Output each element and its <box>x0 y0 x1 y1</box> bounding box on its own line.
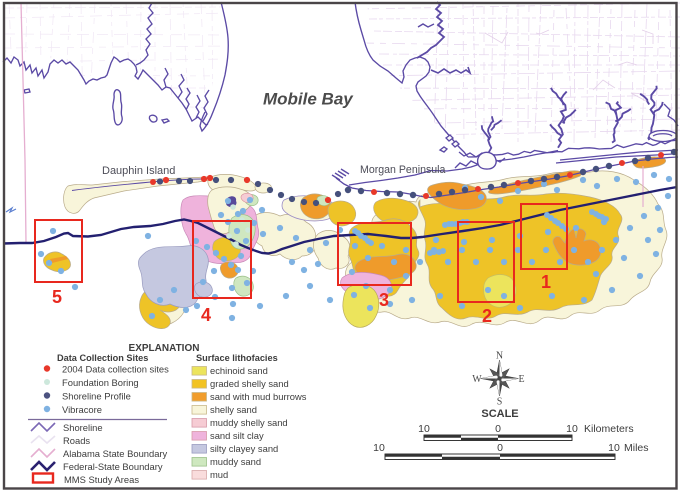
svg-text:2004 Data collection sites: 2004 Data collection sites <box>62 364 169 375</box>
svg-text:Vibracore: Vibracore <box>62 404 102 415</box>
svg-text:Federal-State Boundary: Federal-State Boundary <box>63 461 163 472</box>
svg-text:Alabama State Boundary: Alabama State Boundary <box>63 448 168 459</box>
svg-text:Dauphin Island: Dauphin Island <box>102 165 175 177</box>
svg-text:sand with mud burrows: sand with mud burrows <box>210 391 307 402</box>
svg-text:muddy sand: muddy sand <box>210 456 261 467</box>
svg-text:Data Collection Sites: Data Collection Sites <box>57 353 148 363</box>
svg-text:2: 2 <box>482 306 492 326</box>
svg-text:10: 10 <box>418 423 430 435</box>
svg-text:Foundation Boring: Foundation Boring <box>62 377 139 388</box>
svg-text:10: 10 <box>373 442 385 454</box>
svg-text:Roads: Roads <box>63 435 90 446</box>
svg-text:sand silt clay: sand silt clay <box>210 430 264 441</box>
svg-text:1: 1 <box>541 272 551 292</box>
svg-text:Shoreline Profile: Shoreline Profile <box>62 391 131 402</box>
svg-text:E: E <box>518 374 524 385</box>
svg-text:silty clayey sand: silty clayey sand <box>210 443 278 454</box>
svg-text:10: 10 <box>608 442 620 454</box>
svg-text:SCALE: SCALE <box>481 408 518 420</box>
svg-text:Miles: Miles <box>624 442 649 454</box>
svg-text:mud: mud <box>210 469 228 480</box>
svg-text:0: 0 <box>497 442 503 454</box>
svg-text:graded shelly sand: graded shelly sand <box>210 378 289 389</box>
svg-text:S: S <box>497 397 503 408</box>
svg-text:shelly sand: shelly sand <box>210 404 257 415</box>
svg-text:echinoid sand: echinoid sand <box>210 365 268 376</box>
svg-text:Morgan Peninsula: Morgan Peninsula <box>360 164 445 176</box>
svg-text:Shoreline: Shoreline <box>63 422 103 433</box>
svg-text:3: 3 <box>379 290 389 310</box>
svg-text:N: N <box>496 351 503 362</box>
svg-text:Surface lithofacies: Surface lithofacies <box>196 353 278 363</box>
svg-text:10: 10 <box>566 423 578 435</box>
svg-text:Kilometers: Kilometers <box>584 423 634 435</box>
svg-text:Mobile Bay: Mobile Bay <box>263 90 354 109</box>
svg-text:muddy shelly sand: muddy shelly sand <box>210 417 288 428</box>
svg-text:0: 0 <box>495 423 501 435</box>
svg-text:4: 4 <box>201 305 211 325</box>
svg-text:W: W <box>472 374 482 385</box>
svg-text:MMS Study Areas: MMS Study Areas <box>64 474 139 485</box>
svg-text:5: 5 <box>52 287 62 307</box>
